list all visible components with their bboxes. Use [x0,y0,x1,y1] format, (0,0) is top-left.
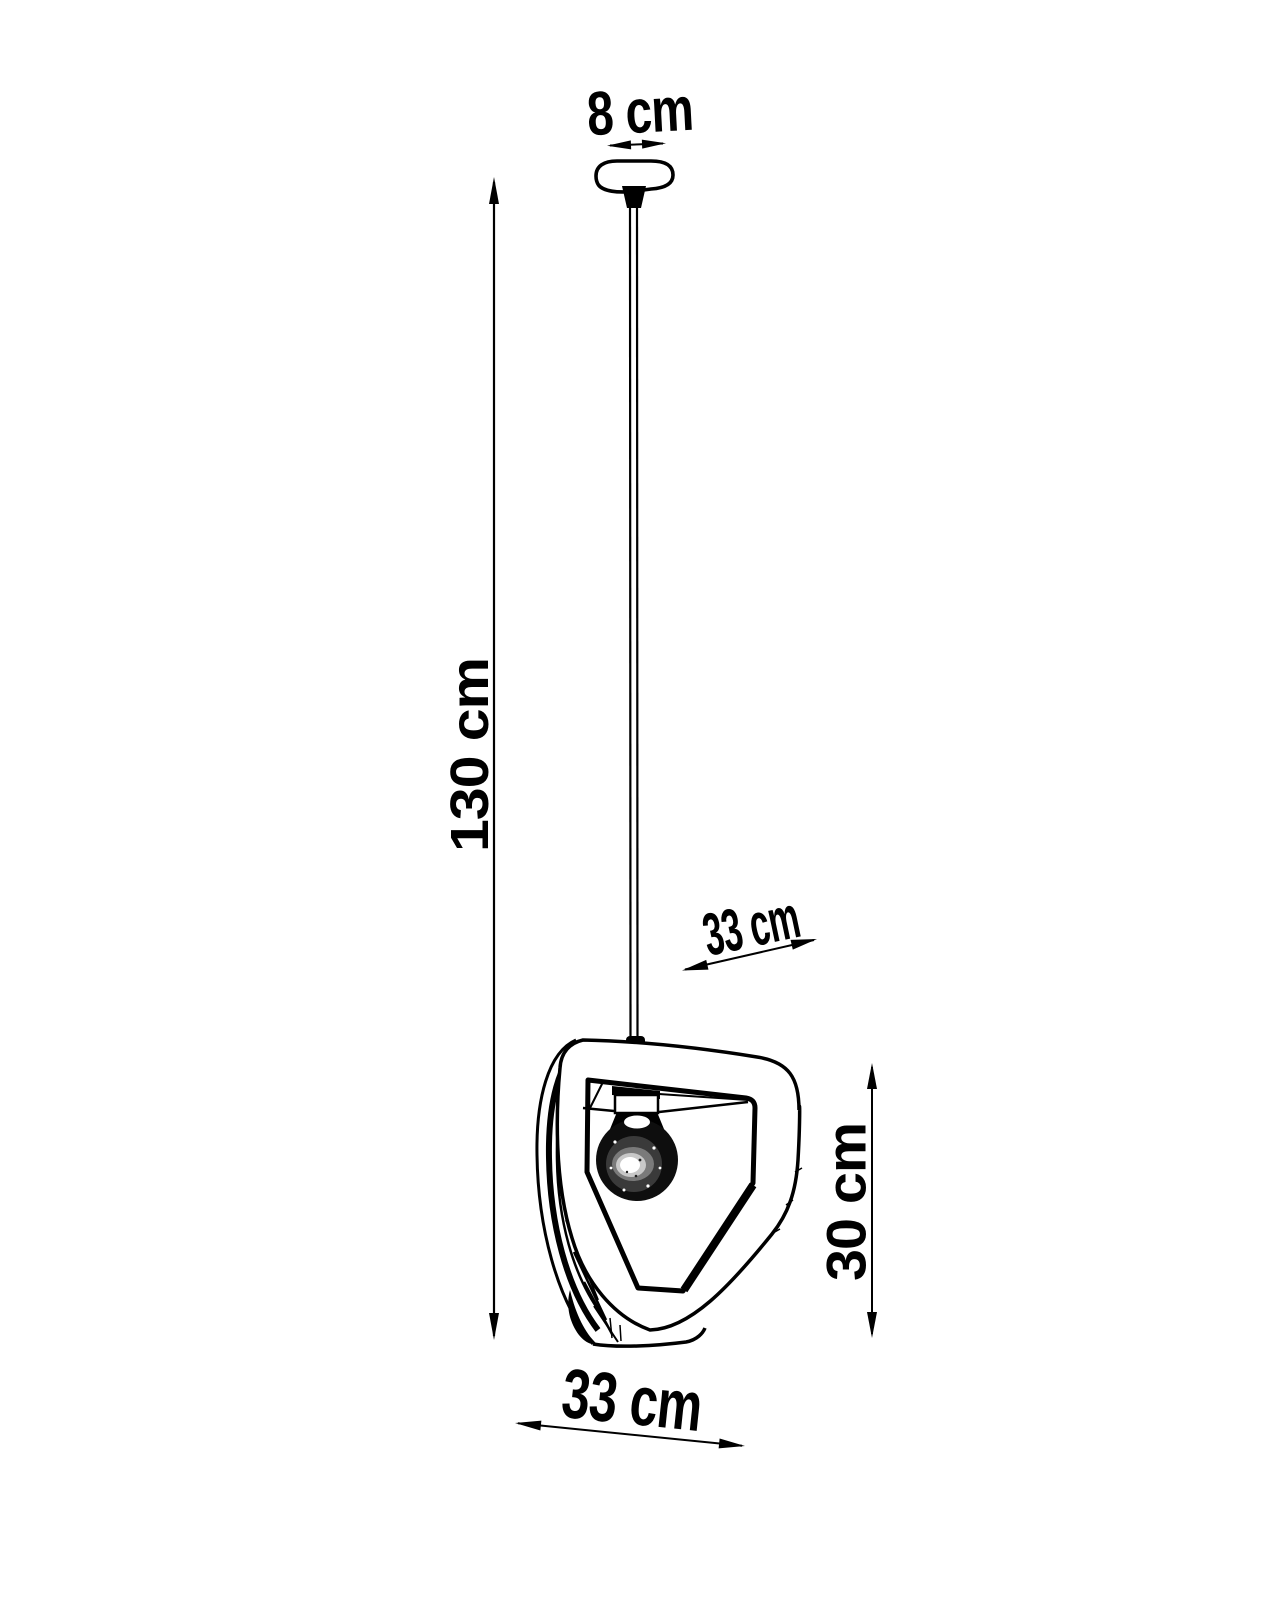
dim-shade-width: 33 cm [515,1354,746,1451]
bulb-socket [615,1095,658,1113]
bulb-speckle [613,1140,616,1143]
bulb-speckle [626,1171,628,1173]
dim-shade-depth: 33 cm [681,883,818,975]
bulb-speckle [646,1184,649,1187]
cable-right-strand [637,206,638,1040]
hatch-tick [610,1318,612,1338]
arrowhead-up-icon [489,177,499,204]
bulb-speckle [635,1175,638,1178]
dim-canopy-width-label: 8 cm [585,75,694,149]
arrowhead-up-icon [867,1063,877,1089]
canopy [596,161,673,208]
hatch-line [594,1306,618,1342]
bulb-glow-core [620,1157,640,1173]
cable [626,206,645,1053]
arrowhead-left-icon [681,960,709,976]
ceiling-connector [622,186,646,208]
dim-shade-height-label: 30 cm [815,1123,878,1281]
pendant-lamp-dimension-diagram: 130 cm 8 cm 33 cm [0,0,1280,1600]
dim-shade-depth-label: 33 cm [697,883,805,968]
bulb-speckle [639,1159,642,1162]
bulb-speckle [623,1189,626,1192]
dim-shade-height: 30 cm [815,1063,878,1338]
dim-canopy-width: 8 cm [585,75,694,151]
dim-drop-height: 130 cm [440,177,500,1340]
bulb-neck-highlight [624,1116,650,1129]
diagram-canvas: 130 cm 8 cm 33 cm [0,0,1280,1600]
arrowhead-down-icon [867,1312,877,1338]
bulb-speckle [652,1146,655,1149]
hatch-tick [620,1325,621,1341]
cable-left-strand [630,206,631,1040]
dim-shade-width-label: 33 cm [558,1354,705,1446]
bulb-speckle [659,1167,662,1170]
arrowhead-down-icon [489,1313,499,1340]
bulb-speckle [610,1167,613,1170]
dim-drop-height-label: 130 cm [440,658,500,852]
shade [537,1040,802,1346]
